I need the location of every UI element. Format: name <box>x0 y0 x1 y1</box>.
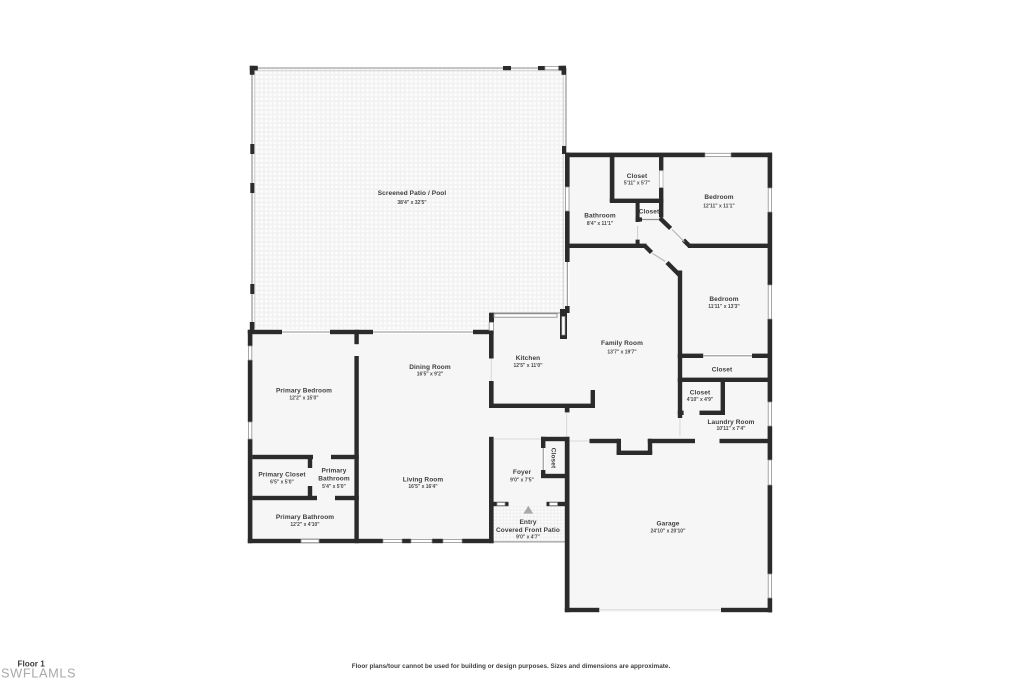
svg-text:11'11" x 13'3": 11'11" x 13'3" <box>708 304 740 310</box>
svg-text:16'5" x 9'2": 16'5" x 9'2" <box>417 372 444 378</box>
svg-text:Closet: Closet <box>639 209 660 216</box>
svg-text:12'11" x 11'1": 12'11" x 11'1" <box>703 204 735 210</box>
svg-text:13'7" x 19'7": 13'7" x 19'7" <box>607 350 637 356</box>
svg-text:4'10" x 4'9": 4'10" x 4'9" <box>687 397 714 403</box>
svg-text:Bedroom: Bedroom <box>709 296 738 303</box>
svg-text:16'5" x 16'4": 16'5" x 16'4" <box>408 484 438 490</box>
svg-text:Living Room: Living Room <box>403 476 444 483</box>
svg-text:8'4" x 11'1": 8'4" x 11'1" <box>587 221 614 227</box>
svg-text:12'2" x 15'0": 12'2" x 15'0" <box>289 396 319 402</box>
svg-text:Covered Front Patio: Covered Front Patio <box>496 527 560 534</box>
svg-text:Dining Room: Dining Room <box>409 364 451 371</box>
svg-text:38'4" x 32'5": 38'4" x 32'5" <box>397 200 427 206</box>
svg-text:12'2" x 4'10": 12'2" x 4'10" <box>290 522 320 528</box>
svg-text:9'0" x 7'5": 9'0" x 7'5" <box>510 478 534 484</box>
svg-text:Family Room: Family Room <box>601 340 643 347</box>
svg-text:SWFLAMLS: SWFLAMLS <box>1 666 76 681</box>
svg-text:Closet: Closet <box>627 173 648 180</box>
svg-text:Primary: Primary <box>322 468 347 475</box>
svg-text:Bathroom: Bathroom <box>318 476 350 483</box>
svg-text:Closet: Closet <box>690 390 711 397</box>
svg-text:5'4" x 5'0": 5'4" x 5'0" <box>322 484 346 490</box>
svg-text:12'5" x 11'0": 12'5" x 11'0" <box>513 363 543 369</box>
svg-text:5'11" x 5'7": 5'11" x 5'7" <box>624 181 651 187</box>
svg-text:Closet: Closet <box>550 448 557 469</box>
svg-text:Primary Closet: Primary Closet <box>258 472 306 479</box>
svg-text:6'5" x 5'0": 6'5" x 5'0" <box>270 480 294 486</box>
svg-text:Foyer: Foyer <box>513 469 532 476</box>
svg-text:Closet: Closet <box>712 367 733 374</box>
svg-text:Laundry Room: Laundry Room <box>707 419 754 426</box>
svg-text:Primary Bathroom: Primary Bathroom <box>276 514 334 521</box>
svg-text:Bathroom: Bathroom <box>584 213 616 220</box>
svg-text:10'11" x 7'4": 10'11" x 7'4" <box>716 426 746 432</box>
svg-text:Entry: Entry <box>519 519 536 526</box>
svg-text:Bedroom: Bedroom <box>704 194 733 201</box>
svg-text:Screened Patio / Pool: Screened Patio / Pool <box>378 190 447 197</box>
svg-text:Primary Bedroom: Primary Bedroom <box>276 388 332 395</box>
svg-text:24'10" x 20'10": 24'10" x 20'10" <box>651 528 687 534</box>
svg-text:Garage: Garage <box>656 521 679 528</box>
svg-text:Floor plans/tour cannot be use: Floor plans/tour cannot be used for buil… <box>352 663 671 670</box>
svg-text:9'0" x 4'7": 9'0" x 4'7" <box>516 535 540 541</box>
svg-text:Kitchen: Kitchen <box>516 355 541 362</box>
